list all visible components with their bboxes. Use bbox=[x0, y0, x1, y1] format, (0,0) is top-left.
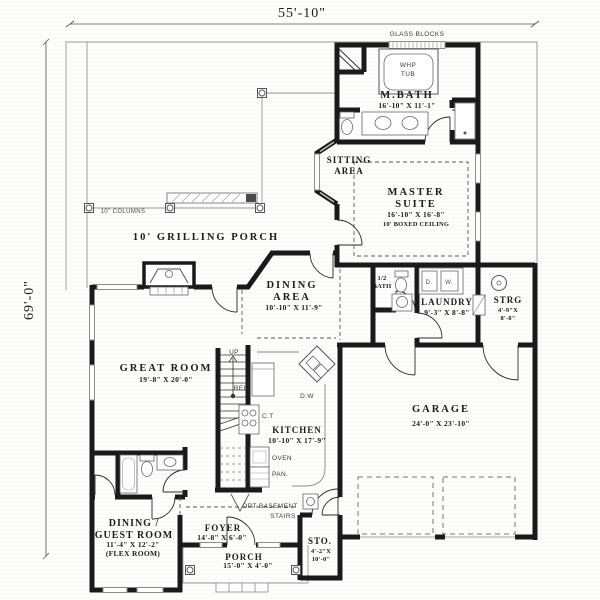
mbath-vanity bbox=[362, 112, 428, 135]
dining-area-label-2: AREA bbox=[273, 292, 311, 303]
laundry-label: LAUNDRY bbox=[421, 297, 473, 307]
garage-label: GARAGE bbox=[412, 404, 470, 415]
dining-guest-dims: 11'-4" X 12'-2" bbox=[106, 540, 159, 549]
foyer-dims: 14'-8" X 6'-0" bbox=[197, 533, 247, 542]
grill-counter bbox=[167, 193, 257, 203]
mbath-shower bbox=[455, 103, 475, 139]
garage-dims: 24'-0" X 23'-10" bbox=[412, 419, 470, 428]
bath-tub bbox=[120, 455, 137, 493]
sto-dims-2: 10'-0" bbox=[312, 556, 331, 563]
great-room-dims: 19'-8" X 20'-0" bbox=[139, 375, 193, 384]
foyer-label: FOYER bbox=[205, 523, 242, 533]
porch-dims: 15'-0" X 4'-0" bbox=[223, 561, 273, 570]
strg-label: STRG bbox=[494, 295, 523, 305]
porch-columns bbox=[85, 89, 301, 575]
cooktop-label: C.T bbox=[262, 413, 274, 420]
dishwasher-label: D.W bbox=[300, 393, 314, 400]
washer-label: W. bbox=[445, 280, 453, 286]
oven-label: OVEN bbox=[272, 455, 292, 462]
dimension-left: 69'-0" bbox=[22, 280, 37, 320]
bath-toilet bbox=[140, 455, 154, 477]
water-heater bbox=[492, 276, 507, 291]
master-ceiling-note: 10' BOXED CEILING bbox=[383, 221, 449, 228]
master-dims: 16'-10" X 16'-8" bbox=[387, 210, 445, 219]
strg-dims-2: 8'-8" bbox=[500, 315, 515, 322]
pantry bbox=[250, 467, 269, 487]
laundry-dims: 9'-3" X 8'-8" bbox=[424, 308, 470, 317]
up-label: UP bbox=[229, 349, 239, 356]
dimension-top: 55'-10" bbox=[278, 6, 326, 21]
ironing-board bbox=[473, 295, 485, 315]
columns-note: 10" COLUMNS bbox=[101, 209, 146, 215]
grilling-porch-label: 10' GRILLING PORCH bbox=[133, 232, 279, 243]
kitchen-label: KITCHEN bbox=[272, 425, 322, 435]
cooktop bbox=[239, 405, 259, 434]
mbath-label: M.BATH bbox=[380, 90, 434, 101]
master-label-2: SUITE bbox=[395, 199, 437, 210]
half-bath-label-1: 1/2 bbox=[378, 275, 387, 282]
dryer-label: D. bbox=[426, 280, 433, 286]
floor-plan-sheet: 55'-10" 69'-0" GLASS BLOCKS WHP TUB M.BA… bbox=[0, 0, 600, 600]
whp-tub-label-1: WHP bbox=[400, 62, 416, 69]
glass-blocks-label: GLASS BLOCKS bbox=[390, 31, 445, 38]
half-bath-sink bbox=[392, 294, 412, 311]
hall-niche bbox=[303, 494, 318, 509]
opt-basement-label-2: STAIRS bbox=[270, 513, 296, 520]
sitting-label-1: SITTING bbox=[327, 155, 372, 165]
pantry-label: PAN. bbox=[272, 471, 288, 478]
bath-vanity bbox=[157, 455, 183, 470]
great-room-label: GREAT ROOM bbox=[120, 363, 213, 374]
sto-dims-1: 4'-2"X bbox=[311, 548, 331, 555]
dining-area-dims: 10'-10" X 11'-9" bbox=[265, 303, 322, 312]
whp-tub-label-2: TUB bbox=[401, 71, 415, 78]
floor-plan-drawing: 55'-10" 69'-0" GLASS BLOCKS WHP TUB M.BA… bbox=[0, 0, 600, 600]
oven bbox=[250, 447, 269, 467]
half-bath-toilet bbox=[395, 271, 408, 292]
master-label-1: MASTER bbox=[388, 187, 445, 198]
ref-label: REF bbox=[234, 385, 248, 392]
sitting-label-2: AREA bbox=[334, 166, 364, 176]
garage-door-headers bbox=[358, 477, 515, 537]
opt-basement-label-1: OPT BASEMENT bbox=[242, 503, 298, 510]
dining-area-label-1: DINING bbox=[266, 280, 317, 291]
mbath-toilet bbox=[340, 112, 354, 135]
dining-guest-label-1: DINING / bbox=[109, 518, 160, 529]
glass-block-window bbox=[389, 42, 445, 49]
sto-label: STO. bbox=[308, 536, 332, 546]
mbath-dims: 16'-10" X 11'-1" bbox=[378, 101, 435, 110]
kitchen-dims: 10'-10" X 17'-9" bbox=[268, 436, 326, 445]
dining-guest-note: (FLEX ROOM) bbox=[106, 549, 161, 558]
strg-dims-1: 4'-9"X bbox=[498, 307, 518, 314]
half-bath-label-2: BATH bbox=[373, 283, 392, 290]
fireplace bbox=[144, 263, 194, 295]
refrigerator bbox=[252, 363, 274, 396]
kitchen-sink bbox=[299, 346, 335, 382]
